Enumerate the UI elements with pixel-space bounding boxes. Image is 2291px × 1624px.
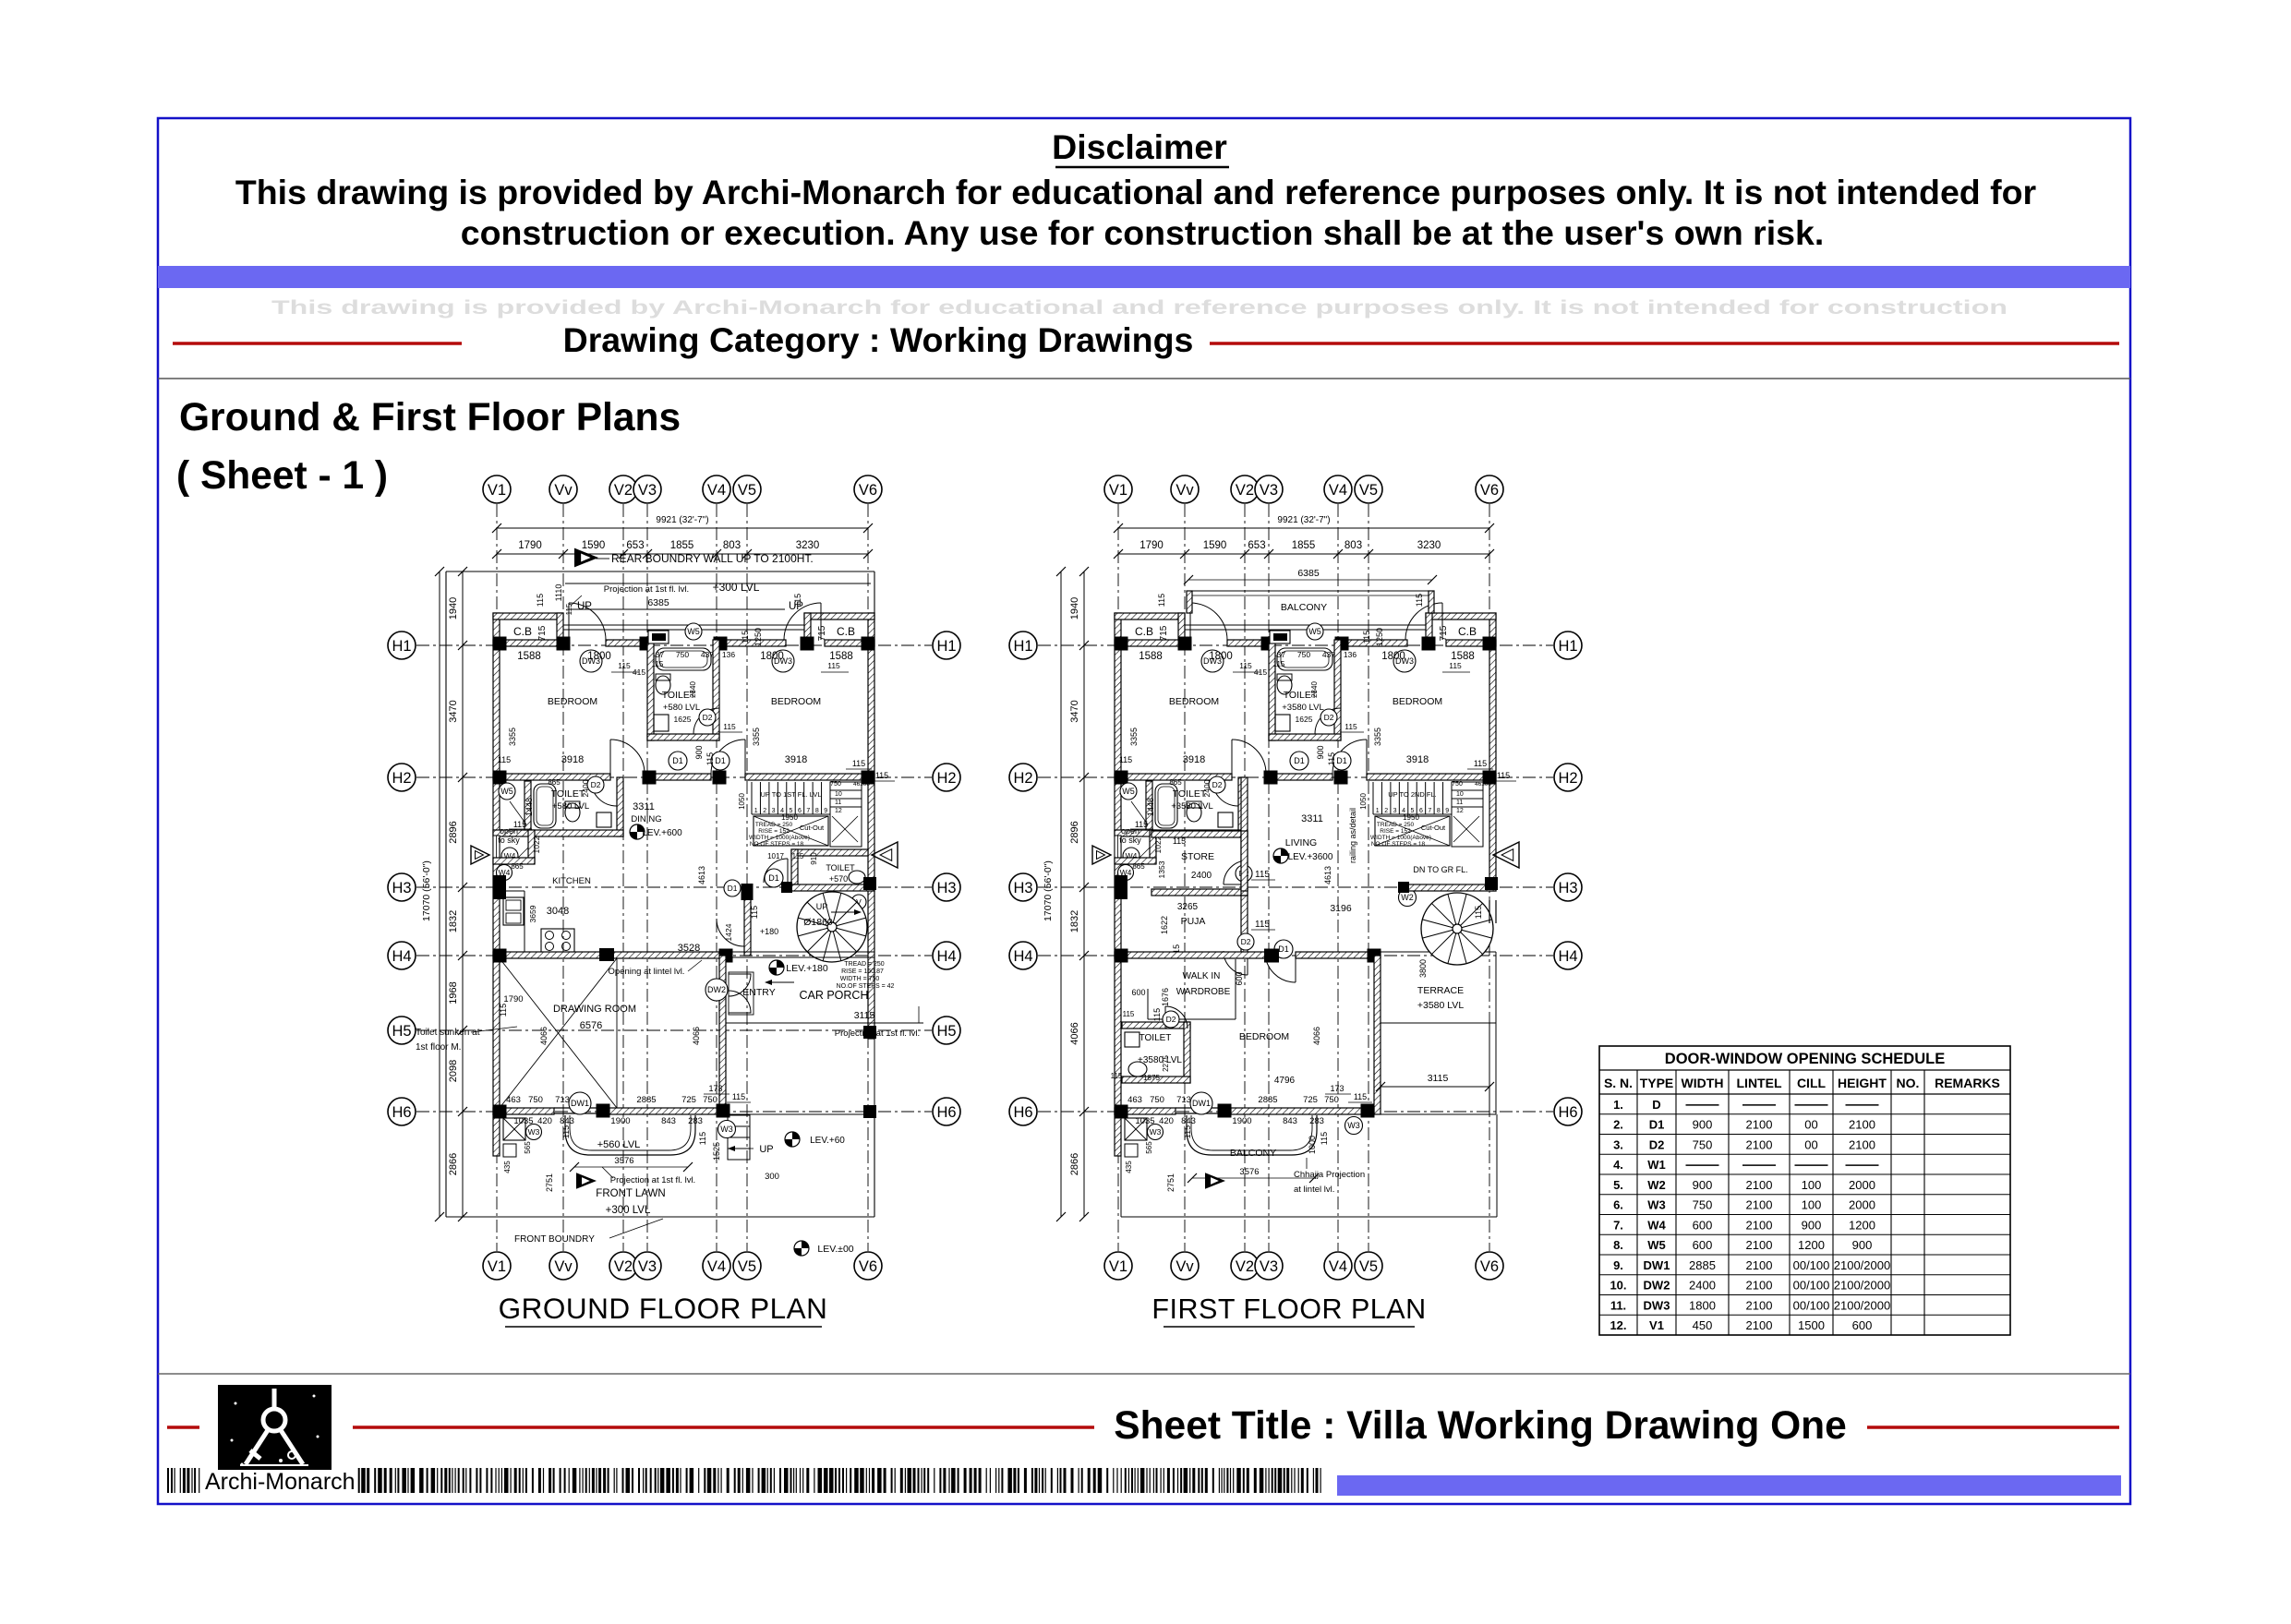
- svg-text:115: 115: [1123, 1010, 1135, 1018]
- svg-text:115: 115: [723, 722, 736, 731]
- svg-text:750: 750: [676, 650, 689, 659]
- svg-text:715: 715: [817, 625, 827, 641]
- svg-text:600: 600: [1852, 1318, 1873, 1332]
- svg-text:843: 843: [661, 1116, 676, 1126]
- svg-text:115: 115: [499, 1004, 508, 1017]
- svg-text:115: 115: [1354, 1092, 1367, 1101]
- svg-text:3.: 3.: [1613, 1137, 1623, 1151]
- svg-text:TREAD = 250: TREAD = 250: [1377, 822, 1415, 828]
- svg-text:3196: 3196: [1330, 903, 1352, 914]
- svg-text:UP: UP: [759, 1144, 773, 1155]
- svg-text:1855: 1855: [670, 540, 694, 551]
- svg-text:DW1: DW1: [1644, 1258, 1670, 1272]
- svg-text:UP TO 1ST FL. LVL: UP TO 1ST FL. LVL: [760, 790, 821, 799]
- svg-text:H5: H5: [392, 1023, 411, 1040]
- svg-text:900: 900: [1802, 1218, 1822, 1232]
- svg-text:725: 725: [1303, 1095, 1318, 1105]
- svg-text:2275: 2275: [1162, 1055, 1170, 1072]
- svg-text:D2: D2: [703, 713, 713, 722]
- svg-text:750: 750: [1693, 1198, 1713, 1212]
- svg-text:00/100: 00/100: [1793, 1298, 1830, 1312]
- svg-text:D2: D2: [1241, 937, 1251, 946]
- svg-text:BEDROOM: BEDROOM: [1239, 1031, 1289, 1042]
- svg-text:115: 115: [536, 594, 545, 607]
- svg-text:6385: 6385: [647, 597, 669, 608]
- svg-text:V2: V2: [1236, 1258, 1254, 1275]
- svg-text:00: 00: [1804, 1118, 1817, 1132]
- svg-text:136: 136: [1344, 650, 1357, 659]
- svg-text:S. N.: S. N.: [1604, 1076, 1633, 1090]
- svg-text:910: 910: [810, 852, 818, 865]
- svg-text:4066: 4066: [692, 1027, 701, 1045]
- svg-text:2100: 2100: [1746, 1198, 1773, 1212]
- svg-text:Cut-Out: Cut-Out: [800, 824, 825, 832]
- svg-text:BALCONY: BALCONY: [1230, 1148, 1276, 1159]
- svg-text:V1: V1: [1649, 1318, 1664, 1332]
- svg-text:1500: 1500: [1798, 1318, 1825, 1332]
- svg-text:1832: 1832: [448, 910, 459, 932]
- svg-text:115: 115: [1183, 1125, 1192, 1138]
- svg-text:9: 9: [1445, 808, 1449, 814]
- svg-text:3230: 3230: [796, 540, 820, 551]
- svg-text:415: 415: [1254, 668, 1267, 677]
- svg-text:V4: V4: [707, 1258, 726, 1275]
- svg-text:1622: 1622: [1160, 916, 1169, 934]
- svg-text:283: 283: [1309, 1116, 1324, 1126]
- svg-text:+3580 LVL: +3580 LVL: [1171, 801, 1213, 812]
- svg-text:V3: V3: [1260, 1258, 1278, 1275]
- svg-text:1424: 1424: [724, 923, 733, 941]
- svg-text:900: 900: [1693, 1118, 1713, 1132]
- svg-text:115: 115: [1474, 759, 1487, 768]
- svg-text:V4: V4: [1329, 1258, 1347, 1275]
- svg-text:2100: 2100: [1746, 1318, 1773, 1332]
- svg-text:DRAWING ROOM: DRAWING ROOM: [553, 1004, 636, 1015]
- svg-text:D1: D1: [715, 756, 726, 765]
- svg-text:1790: 1790: [518, 540, 542, 551]
- svg-text:115: 115: [498, 755, 511, 764]
- svg-text:653: 653: [1248, 540, 1265, 551]
- svg-text:115: 115: [1111, 1072, 1123, 1080]
- svg-text:115: 115: [698, 1132, 707, 1145]
- svg-text:6: 6: [798, 808, 802, 814]
- svg-text:115: 115: [513, 820, 526, 829]
- svg-text:WIDTH: WIDTH: [1682, 1076, 1724, 1090]
- svg-text:H6: H6: [1013, 1104, 1032, 1121]
- svg-text:115: 115: [1344, 722, 1357, 731]
- svg-text:17070 (56'-0"): 17070 (56'-0"): [421, 860, 432, 921]
- svg-text:3918: 3918: [561, 754, 584, 765]
- svg-text:UP: UP: [816, 902, 828, 911]
- svg-text:115: 115: [875, 771, 888, 780]
- svg-text:6385: 6385: [1297, 568, 1320, 579]
- svg-text:LEV.+3600: LEV.+3600: [1288, 852, 1333, 862]
- svg-text:H4: H4: [1558, 948, 1577, 965]
- svg-text:H6: H6: [392, 1104, 411, 1121]
- svg-text:1950: 1950: [781, 813, 798, 822]
- svg-text:4.: 4.: [1613, 1158, 1623, 1172]
- svg-text:9.: 9.: [1613, 1258, 1623, 1272]
- svg-text:LINTEL: LINTEL: [1737, 1076, 1782, 1090]
- svg-text:Sheet Title : Villa Working Dr: Sheet Title : Villa Working Drawing One: [1114, 1404, 1847, 1448]
- svg-text:Opening at lintel lvl.: Opening at lintel lvl.: [609, 967, 685, 977]
- svg-text:+570: +570: [829, 874, 848, 884]
- svg-text:46100: 46100: [853, 781, 870, 788]
- svg-text:115: 115: [1327, 752, 1336, 765]
- svg-text:750: 750: [528, 1095, 543, 1105]
- svg-text:115: 115: [1449, 661, 1462, 670]
- svg-text:713: 713: [1176, 1095, 1191, 1105]
- svg-text:865: 865: [548, 778, 561, 787]
- svg-text:565: 565: [524, 1141, 532, 1154]
- svg-text:2340: 2340: [689, 681, 697, 698]
- svg-text:115: 115: [705, 752, 715, 765]
- svg-text:V5: V5: [738, 482, 756, 499]
- svg-text:+300 LVL: +300 LVL: [713, 581, 760, 594]
- svg-text:D1: D1: [768, 873, 779, 883]
- svg-text:Vv: Vv: [1176, 1258, 1194, 1275]
- svg-text:2896: 2896: [448, 821, 459, 843]
- svg-text:3355: 3355: [752, 728, 761, 746]
- svg-text:UP TO 2ND FL.: UP TO 2ND FL.: [1388, 790, 1437, 799]
- svg-text:3230: 3230: [1417, 540, 1441, 551]
- svg-text:1022: 1022: [1153, 836, 1163, 853]
- svg-text:115: 115: [1320, 1132, 1329, 1145]
- svg-text:PUJA: PUJA: [1181, 916, 1206, 927]
- svg-text:1800: 1800: [1381, 651, 1405, 662]
- svg-text:115: 115: [750, 906, 759, 919]
- svg-text:115: 115: [1173, 836, 1186, 846]
- svg-text:Archi-Monarch: Archi-Monarch: [205, 1469, 356, 1495]
- svg-text:750: 750: [703, 1095, 717, 1105]
- svg-text:D: D: [1652, 1098, 1660, 1112]
- svg-text:1050: 1050: [738, 793, 746, 810]
- svg-text:3115: 3115: [854, 1010, 875, 1021]
- svg-text:STORE: STORE: [1181, 851, 1214, 862]
- svg-text:V1: V1: [488, 482, 506, 499]
- svg-text:2100/2000: 2100/2000: [1834, 1279, 1890, 1293]
- svg-text:5.: 5.: [1613, 1178, 1623, 1192]
- svg-text:6.: 6.: [1613, 1198, 1623, 1212]
- svg-text:2100/2000: 2100/2000: [1834, 1258, 1890, 1272]
- svg-text:6576: 6576: [580, 1020, 602, 1031]
- svg-text:2100: 2100: [1746, 1279, 1773, 1293]
- svg-text:115: 115: [1362, 631, 1371, 644]
- svg-text:V4: V4: [707, 482, 726, 499]
- svg-text:W5: W5: [687, 627, 700, 636]
- svg-text:H2: H2: [1558, 770, 1577, 787]
- svg-text:Cut-Out: Cut-Out: [1421, 824, 1446, 832]
- svg-text:H3: H3: [1013, 880, 1032, 896]
- svg-text:115: 115: [1239, 661, 1252, 670]
- svg-text:D2: D2: [1166, 1015, 1176, 1024]
- svg-text:DINING: DINING: [631, 814, 661, 824]
- svg-text:3659: 3659: [528, 905, 537, 922]
- svg-text:9921 (32'-7"): 9921 (32'-7"): [1277, 515, 1330, 525]
- svg-text:3265: 3265: [1177, 902, 1199, 912]
- svg-text:115: 115: [1255, 920, 1270, 930]
- svg-text:1588: 1588: [1139, 651, 1163, 662]
- svg-text:D1: D1: [672, 756, 683, 765]
- svg-text:2098: 2098: [448, 1060, 459, 1082]
- svg-text:This drawing is provided by Ar: This drawing is provided by Archi-Monarc…: [271, 297, 2008, 319]
- svg-text:D2: D2: [1212, 780, 1223, 789]
- svg-text:H1: H1: [936, 638, 956, 655]
- svg-text:2000: 2000: [1849, 1198, 1875, 1212]
- svg-text:1800: 1800: [760, 651, 784, 662]
- svg-text:115: 115: [652, 660, 664, 668]
- svg-text:435: 435: [1125, 1161, 1133, 1173]
- svg-text:Projection at 1st fl. lvl.: Projection at 1st fl. lvl.: [835, 1029, 920, 1039]
- svg-text:C.B: C.B: [1135, 625, 1153, 638]
- svg-text:H3: H3: [936, 880, 956, 896]
- svg-text:7: 7: [806, 808, 810, 814]
- svg-text:115: 115: [1497, 771, 1510, 780]
- svg-text:750: 750: [1452, 781, 1463, 788]
- svg-text:V1: V1: [488, 1258, 506, 1275]
- svg-text:3311: 3311: [1301, 813, 1323, 824]
- svg-text:12: 12: [835, 808, 842, 814]
- svg-text:115: 115: [1474, 906, 1483, 919]
- svg-text:at lintel lvl.: at lintel lvl.: [1294, 1185, 1334, 1195]
- svg-text:1676: 1676: [1161, 988, 1170, 1006]
- svg-text:H1: H1: [1558, 638, 1577, 655]
- svg-text:D2: D2: [591, 780, 601, 789]
- svg-text:TOILET: TOILET: [1139, 1033, 1172, 1043]
- svg-text:C.B: C.B: [513, 625, 532, 638]
- svg-text:1950: 1950: [1403, 813, 1419, 822]
- svg-text:8: 8: [1437, 808, 1441, 814]
- svg-text:2340: 2340: [1310, 681, 1319, 698]
- svg-text:115: 115: [827, 661, 840, 670]
- svg-text:843: 843: [560, 1116, 574, 1126]
- svg-text:900: 900: [1316, 745, 1325, 759]
- svg-text:4066: 4066: [1312, 1027, 1321, 1045]
- svg-text:00/100: 00/100: [1793, 1279, 1830, 1293]
- svg-text:TREAD = 250: TREAD = 250: [755, 822, 793, 828]
- svg-text:H3: H3: [392, 880, 411, 896]
- svg-text:Ø1860: Ø1860: [803, 917, 833, 928]
- svg-text:1353: 1353: [1157, 860, 1166, 878]
- svg-text:V4: V4: [1329, 482, 1347, 499]
- svg-text:2100: 2100: [1746, 1218, 1773, 1232]
- svg-text:W3: W3: [1347, 1121, 1360, 1130]
- svg-text:WIDTH = 1000(Above): WIDTH = 1000(Above): [1370, 835, 1431, 841]
- svg-text:C.B: C.B: [1458, 625, 1477, 638]
- svg-text:2100: 2100: [1746, 1238, 1773, 1252]
- svg-text:+3580 LVL: +3580 LVL: [1138, 1055, 1182, 1065]
- svg-text:3918: 3918: [785, 754, 807, 765]
- svg-text:4066: 4066: [1069, 1022, 1080, 1044]
- svg-text:2100: 2100: [1746, 1258, 1773, 1272]
- svg-text:3470: 3470: [1069, 700, 1080, 722]
- svg-text:1832: 1832: [1069, 910, 1080, 932]
- svg-text:+580 LVL: +580 LVL: [552, 801, 589, 812]
- svg-text:713: 713: [555, 1095, 570, 1105]
- svg-text:2100: 2100: [1746, 1178, 1773, 1192]
- svg-text:00: 00: [1804, 1137, 1817, 1151]
- svg-text:2.: 2.: [1613, 1118, 1623, 1132]
- svg-text:W3: W3: [1150, 1127, 1162, 1137]
- svg-text:115: 115: [1255, 870, 1270, 880]
- svg-text:NO.OF STEPS = 42: NO.OF STEPS = 42: [837, 983, 895, 990]
- svg-text:865: 865: [511, 862, 524, 871]
- svg-text:115: 115: [732, 1092, 745, 1101]
- svg-text:UP: UP: [577, 601, 592, 612]
- svg-text:D1: D1: [1278, 944, 1289, 954]
- svg-text:1940: 1940: [448, 597, 459, 620]
- svg-text:railing as/detail: railing as/detail: [1348, 808, 1357, 863]
- svg-text:3470: 3470: [448, 700, 459, 722]
- svg-text:3576: 3576: [1239, 1167, 1259, 1177]
- svg-text:803: 803: [1344, 540, 1362, 551]
- svg-text:DW3: DW3: [1644, 1298, 1670, 1312]
- svg-text:1110: 1110: [554, 584, 563, 602]
- svg-text:115: 115: [1119, 755, 1132, 764]
- svg-text:V5: V5: [738, 1258, 756, 1275]
- svg-text:DW1: DW1: [1192, 1099, 1211, 1108]
- svg-text:V6: V6: [859, 1258, 877, 1275]
- svg-text:3918: 3918: [1406, 754, 1429, 765]
- svg-text:REAR BOUNDRY WALL UP TO 2100HT: REAR BOUNDRY WALL UP TO 2100HT.: [611, 552, 814, 565]
- svg-text:750: 750: [1693, 1137, 1713, 1151]
- svg-text:1590: 1590: [582, 540, 606, 551]
- svg-text:RISE = 152: RISE = 152: [758, 828, 790, 835]
- svg-text:2100: 2100: [1746, 1118, 1773, 1132]
- svg-text:V3: V3: [638, 482, 657, 499]
- svg-text:843: 843: [1283, 1116, 1297, 1126]
- svg-text:6: 6: [1419, 808, 1423, 814]
- svg-text:1448: 1448: [1146, 798, 1155, 816]
- svg-text:715: 715: [537, 625, 548, 641]
- svg-text:W5: W5: [500, 787, 513, 796]
- svg-text:1940: 1940: [1069, 597, 1080, 620]
- svg-text:136: 136: [722, 650, 735, 659]
- svg-text:D1: D1: [1649, 1118, 1665, 1132]
- svg-text:7.: 7.: [1613, 1218, 1623, 1232]
- svg-text:865: 865: [1132, 862, 1145, 871]
- svg-text:DW2: DW2: [707, 985, 726, 994]
- svg-text:600: 600: [1235, 971, 1244, 985]
- svg-text:3: 3: [1393, 808, 1397, 814]
- svg-text:W1: W1: [1647, 1158, 1666, 1172]
- svg-text:V2: V2: [614, 1258, 633, 1275]
- svg-text:1790: 1790: [1139, 540, 1164, 551]
- svg-text:4613: 4613: [697, 866, 706, 884]
- svg-text:715: 715: [1439, 625, 1449, 641]
- svg-text:W3: W3: [1647, 1198, 1666, 1212]
- svg-text:725: 725: [681, 1095, 696, 1105]
- svg-text:DW1: DW1: [571, 1099, 589, 1108]
- svg-text:NO.OF STEPS = 18: NO.OF STEPS = 18: [1371, 841, 1426, 848]
- svg-text:600: 600: [1693, 1218, 1713, 1232]
- svg-text:435: 435: [503, 1161, 512, 1173]
- svg-text:415: 415: [633, 668, 645, 677]
- svg-text:Projection at 1st fl. lvl.: Projection at 1st fl. lvl.: [610, 1175, 695, 1185]
- svg-text:2866: 2866: [448, 1153, 459, 1175]
- svg-text:900: 900: [1852, 1238, 1873, 1252]
- svg-text:RISE = 152: RISE = 152: [1380, 828, 1411, 835]
- svg-text:115: 115: [792, 852, 804, 860]
- svg-text:WIDTH = 1000(Above): WIDTH = 1000(Above): [749, 835, 810, 841]
- svg-text:2100/2000: 2100/2000: [1834, 1298, 1890, 1312]
- svg-text:900: 900: [694, 745, 704, 759]
- svg-text:9921 (32'-7"): 9921 (32'-7"): [656, 515, 708, 525]
- svg-text:DW2: DW2: [1644, 1279, 1670, 1293]
- svg-text:H2: H2: [1013, 770, 1032, 787]
- svg-text:This drawing is provided by Ar: This drawing is provided by Archi-Monarc…: [235, 173, 2037, 211]
- svg-text:3576: 3576: [614, 1156, 633, 1166]
- svg-text:8.: 8.: [1613, 1238, 1623, 1252]
- svg-text:46100: 46100: [1475, 781, 1491, 788]
- svg-text:3355: 3355: [508, 728, 517, 746]
- svg-text:+560 LVL: +560 LVL: [597, 1139, 641, 1150]
- svg-text:1: 1: [754, 808, 758, 814]
- svg-text:TREAD = 250: TREAD = 250: [844, 961, 884, 968]
- svg-text:1200: 1200: [1849, 1218, 1875, 1232]
- svg-text:4613: 4613: [1323, 866, 1332, 884]
- svg-text:WARDROBE: WARDROBE: [1176, 987, 1231, 997]
- svg-text:LIVING: LIVING: [1285, 837, 1317, 848]
- svg-text:450: 450: [1693, 1318, 1713, 1332]
- svg-text:115: 115: [1157, 594, 1166, 607]
- svg-text:Projection at 1st fl. lvl.: Projection at 1st fl. lvl.: [604, 584, 689, 595]
- svg-text:NO.OF STEPS = 18: NO.OF STEPS = 18: [750, 841, 804, 848]
- svg-text:115: 115: [852, 759, 865, 768]
- svg-text:11.: 11.: [1610, 1298, 1626, 1312]
- svg-text:1855: 1855: [1292, 540, 1316, 551]
- svg-text:W2: W2: [1401, 893, 1414, 902]
- svg-text:4796: 4796: [1274, 1076, 1296, 1086]
- svg-text:1800: 1800: [1209, 651, 1233, 662]
- svg-text:TYPE: TYPE: [1640, 1076, 1674, 1090]
- svg-text:construction or execution. Any: construction or execution. Any use for c…: [461, 213, 1825, 252]
- svg-text:D1: D1: [1294, 756, 1305, 765]
- svg-text:W4: W4: [1647, 1218, 1666, 1232]
- svg-text:V1: V1: [1109, 482, 1127, 499]
- svg-text:Vv: Vv: [554, 482, 573, 499]
- svg-text:BEDROOM: BEDROOM: [1393, 696, 1442, 707]
- svg-text:10.: 10.: [1610, 1279, 1626, 1293]
- svg-text:LEV.±00: LEV.±00: [817, 1244, 853, 1255]
- svg-text:TOILET: TOILET: [826, 863, 855, 872]
- svg-text:1590: 1590: [1203, 540, 1227, 551]
- svg-text:3355: 3355: [1129, 728, 1139, 746]
- svg-text:2885: 2885: [1689, 1258, 1716, 1272]
- svg-text:( Sheet - 1 ): ( Sheet - 1 ): [176, 454, 388, 498]
- svg-text:115: 115: [793, 594, 802, 607]
- svg-text:115: 115: [741, 631, 750, 644]
- svg-text:2751: 2751: [545, 1173, 554, 1192]
- svg-text:W5: W5: [1308, 627, 1321, 636]
- svg-text:2885: 2885: [1258, 1095, 1277, 1105]
- svg-text:600: 600: [1693, 1238, 1713, 1252]
- svg-text:1022: 1022: [532, 836, 541, 853]
- svg-text:11: 11: [1456, 800, 1463, 806]
- svg-text:LEV.+600: LEV.+600: [642, 828, 682, 838]
- svg-text:FRONT BOUNDRY: FRONT BOUNDRY: [514, 1234, 595, 1245]
- svg-text:+3580 LVL: +3580 LVL: [1282, 703, 1324, 713]
- svg-text:3: 3: [772, 808, 776, 814]
- svg-text:RISE = 160.87: RISE = 160.87: [841, 968, 884, 975]
- svg-text:2400: 2400: [1191, 871, 1212, 881]
- svg-text:1250: 1250: [754, 628, 763, 646]
- svg-text:WIDTH = 750: WIDTH = 750: [840, 976, 880, 982]
- svg-text:H6: H6: [936, 1104, 956, 1121]
- svg-text:1200: 1200: [1798, 1238, 1825, 1252]
- svg-text:+3580 LVL: +3580 LVL: [1417, 1000, 1464, 1011]
- svg-text:ENTRY: ENTRY: [742, 987, 775, 998]
